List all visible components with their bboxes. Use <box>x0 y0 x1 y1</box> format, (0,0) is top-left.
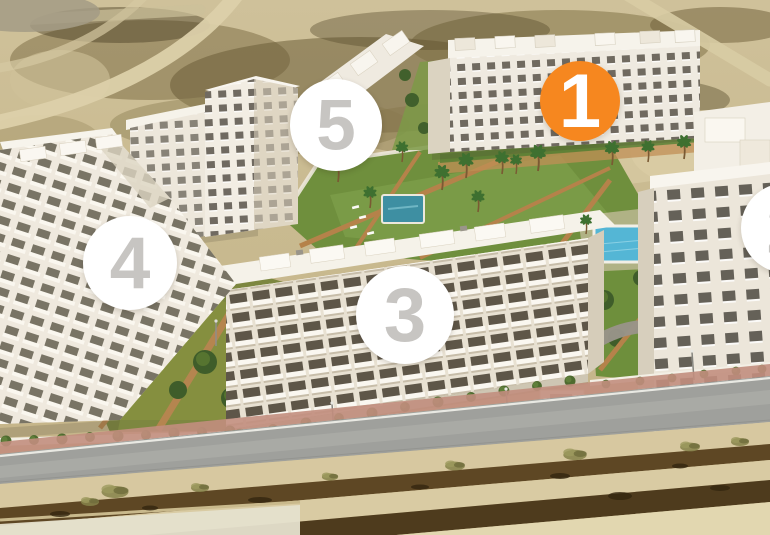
marker-number: 3 <box>384 278 426 354</box>
site-plan: 1 2 3 4 5 <box>0 0 770 535</box>
marker-number: 5 <box>316 90 356 161</box>
marker-building-3[interactable]: 3 <box>356 266 454 364</box>
marker-number: 1 <box>559 64 601 140</box>
marker-building-4[interactable]: 4 <box>83 216 177 310</box>
marker-number: 2 <box>767 194 770 264</box>
marker-number: 4 <box>110 227 151 300</box>
marker-building-1[interactable]: 1 <box>540 61 620 141</box>
marker-building-5[interactable]: 5 <box>290 79 382 171</box>
